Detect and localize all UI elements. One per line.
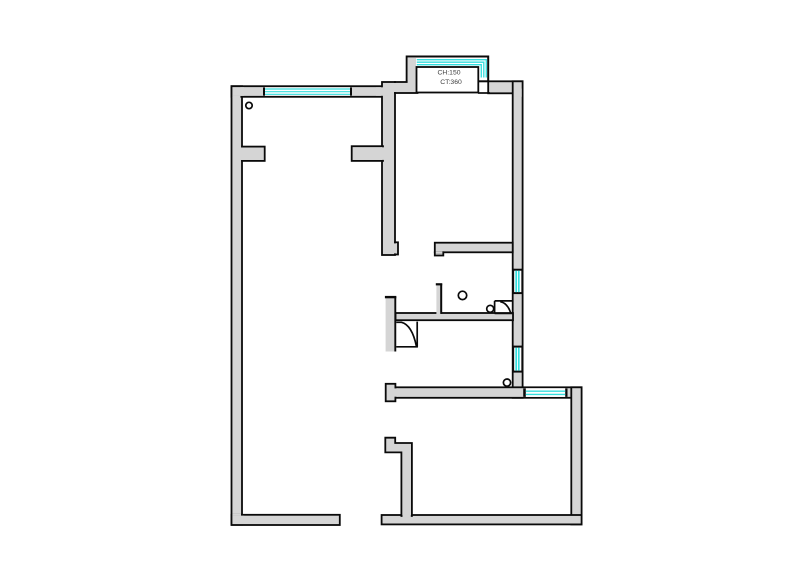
svg-text:CH:150: CH:150 — [437, 70, 460, 77]
svg-text:CT:360: CT:360 — [440, 79, 462, 86]
